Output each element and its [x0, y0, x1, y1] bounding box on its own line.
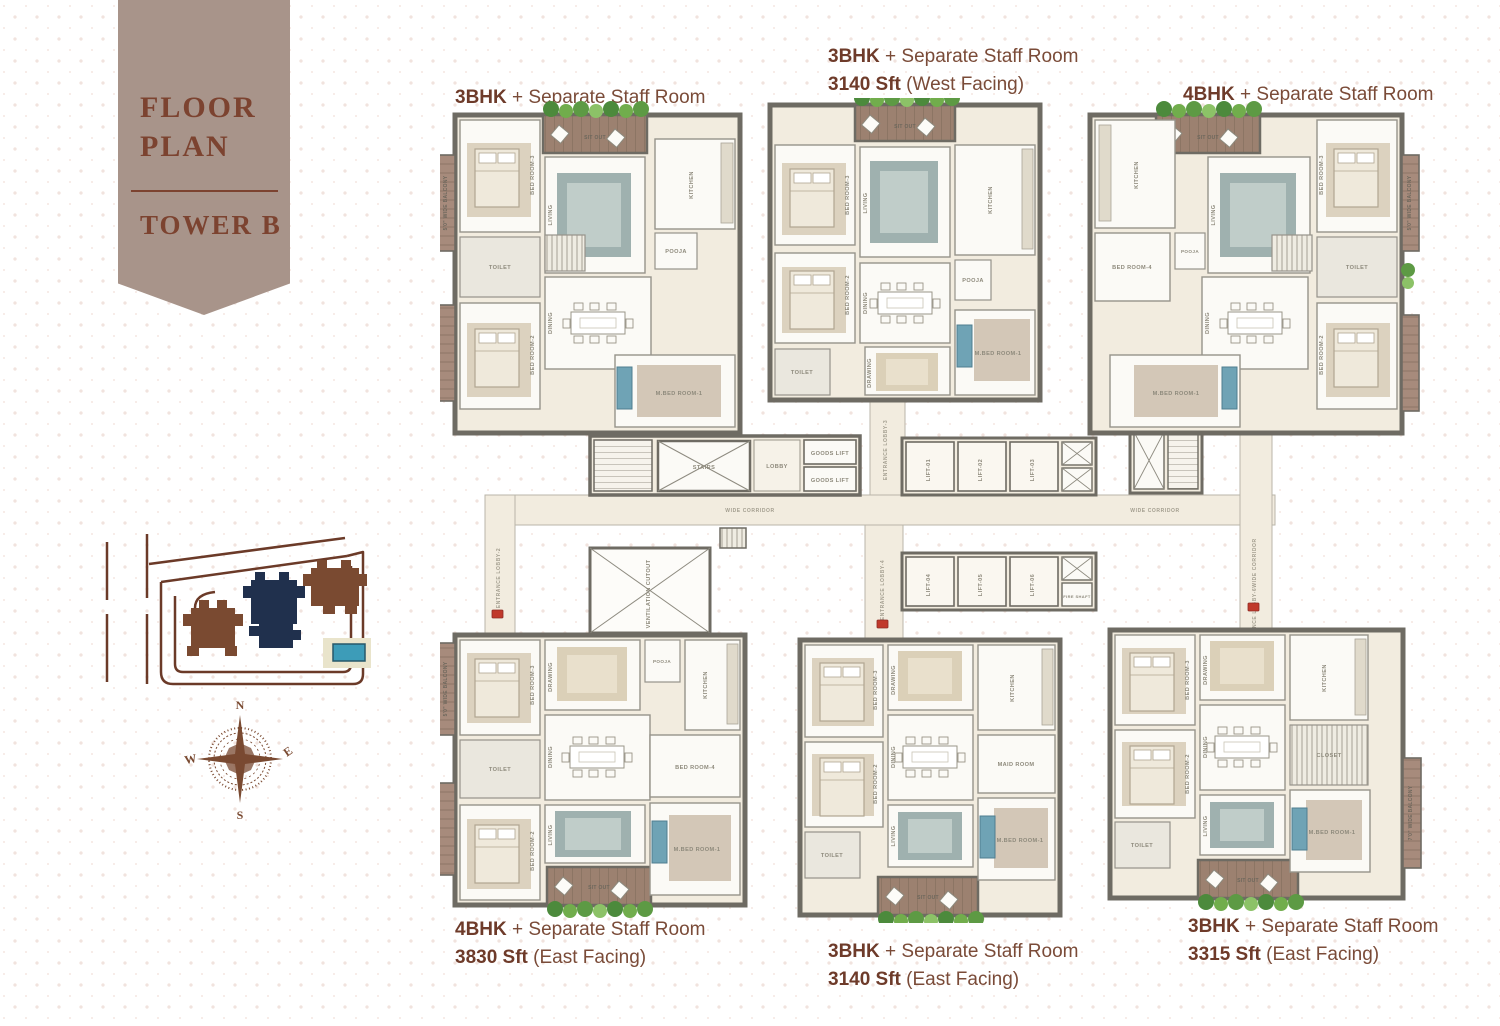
compass-w: W — [183, 751, 198, 767]
pooja-label: POOJA — [665, 249, 687, 255]
maid-room-label: MAID ROOM — [998, 762, 1035, 768]
sitout-label: SIT OUT — [1197, 135, 1219, 141]
unit-type: 3BHK — [828, 46, 880, 67]
unit-area: 3315 Sft — [1188, 944, 1261, 965]
unit-facing: (East Facing) — [533, 947, 646, 968]
lift-05-label: LIFT-05 — [978, 574, 984, 596]
corridor-label-vertical: WIDE CORRIDOR — [1252, 538, 1258, 587]
bed2-label: BED ROOM-2 — [530, 335, 536, 375]
compass-rose: N E S W — [183, 695, 298, 825]
unit-facing: (West Facing) — [906, 74, 1024, 95]
kitchen-label: KITCHEN — [1134, 161, 1140, 189]
living-label: LIVING — [891, 825, 897, 846]
toilet-label: TOILET — [1131, 843, 1153, 849]
unit-suffix: + Separate Staff Room — [885, 46, 1078, 67]
unit-plan-bottom-center: SIT OUT BED ROOM-3 DRAWING KITCHEN DININ… — [800, 640, 1060, 923]
living-label: LIVING — [548, 204, 554, 225]
dining-label: DINING — [548, 746, 554, 768]
dining-label: DINING — [891, 746, 897, 768]
floor-plan-page: FLOOR PLAN TOWER B 3BHK + Separate Staff… — [0, 0, 1500, 1026]
sitout-deck: SIT OUT — [547, 867, 653, 918]
lobby-label: LOBBY — [766, 464, 788, 470]
kitchen-label: KITCHEN — [703, 671, 709, 699]
drawing-label: DRAWING — [548, 662, 554, 692]
pooja-label: POOJA — [653, 659, 671, 664]
plants — [1401, 263, 1415, 277]
bed2-label: BED ROOM-2 — [530, 831, 536, 871]
bed3-label: BED ROOM-3 — [530, 665, 536, 705]
stairs-right — [1130, 428, 1202, 493]
unit-area: 3140 Sft — [828, 969, 901, 990]
mbed-label: M.BED ROOM-1 — [674, 847, 721, 853]
stairs-left — [594, 440, 652, 491]
balcony — [1402, 315, 1419, 411]
bed3-label: BED ROOM-3 — [1185, 660, 1191, 700]
unit-plan-bottom-left: 5'0" WIDE BALCONY SIT OUT DRAWING POOJA … — [440, 635, 745, 918]
lift-03-label: LIFT-03 — [1030, 459, 1036, 481]
drawing-label: DRAWING — [1203, 655, 1209, 685]
sitout-deck: SIT OUT — [854, 98, 960, 141]
goods-lift-label: GOODS LIFT — [811, 478, 849, 484]
kitchen-label: KITCHEN — [1322, 664, 1328, 692]
compass-e: E — [281, 743, 296, 759]
balcony-label: 7'0" WIDE BALCONY — [1408, 785, 1414, 840]
title-line-2: PLAN — [140, 127, 290, 166]
unit-plan-top-left: 5'0" WIDE BALCONY SIT OUT BED ROOM-3 LIV… — [440, 101, 740, 433]
mbed-label: M.BED ROOM-1 — [1309, 830, 1356, 836]
kitchen-label: KITCHEN — [988, 186, 994, 214]
lift-bank-lower: LIFT-04 LIFT-05 LIFT-06 FIRE SHAFT — [902, 553, 1096, 610]
unit-area: 3140 Sft — [828, 74, 901, 95]
garbage-chute — [720, 528, 746, 548]
toilet-label: TOILET — [489, 265, 511, 271]
sitout-label: SIT OUT — [1237, 878, 1259, 884]
bed2-label: BED ROOM-2 — [1319, 335, 1325, 375]
compass-star-minor — [224, 743, 256, 775]
pooja-label: POOJA — [1181, 249, 1199, 254]
dining-label: DINING — [548, 312, 554, 334]
lift-06-label: LIFT-06 — [1030, 574, 1036, 596]
compass-n: N — [236, 698, 245, 712]
pooja-label: POOJA — [962, 278, 984, 284]
mbed-label: M.BED ROOM-1 — [1153, 391, 1200, 397]
unit-plan-top-right: 5'0" WIDE BALCONY SIT OUT BED ROOM-3 LIV… — [1090, 101, 1419, 433]
drawing-label: DRAWING — [867, 358, 873, 388]
lift-bank-upper: LIFT-01 LIFT-02 LIFT-03 — [902, 438, 1096, 495]
unit-label-bottom-center: 3BHK + Separate Staff Room 3140 Sft (Eas… — [828, 938, 1078, 994]
site-tower-b-highlighted — [243, 572, 305, 648]
sitout-deck: SIT OUT — [1198, 860, 1304, 911]
entrance-lobby-4-label: ENTRANCE LOBBY-4 — [880, 560, 886, 620]
toilet-label: TOILET — [1346, 265, 1368, 271]
bed4-label: BED ROOM-4 — [675, 765, 715, 771]
toilet-label: TOILET — [791, 370, 813, 376]
corridor-label: WIDE CORRIDOR — [1130, 508, 1179, 514]
balcony-label: 5'0" WIDE BALCONY — [1407, 175, 1413, 230]
sitout-deck: SIT OUT — [878, 877, 984, 923]
toilet-label: TOILET — [489, 767, 511, 773]
bed3-label: BED ROOM-3 — [873, 670, 879, 710]
dining-label: DINING — [863, 292, 869, 314]
mbed-label: M.BED ROOM-1 — [656, 391, 703, 397]
unit-plan-bottom-right: 7'0" WIDE BALCONY SIT OUT BED ROOM-3 DRA… — [1110, 630, 1421, 911]
plants — [1402, 277, 1414, 289]
site-tower-a — [183, 600, 243, 656]
toilet-label: TOILET — [821, 853, 843, 859]
balcony — [440, 783, 455, 875]
bed2-label: BED ROOM-2 — [845, 275, 851, 315]
living-label: LIVING — [863, 192, 869, 213]
bed3-label: BED ROOM-3 — [530, 155, 536, 195]
balcony — [440, 305, 455, 401]
living-label: LIVING — [1203, 815, 1209, 836]
living-label: LIVING — [1211, 204, 1217, 225]
ventilation-small-label: STAIRS — [693, 465, 716, 471]
unit-plan-top-center: SIT OUT BED ROOM-3 LIVING KITCHEN POOJA … — [770, 98, 1040, 400]
bed3-label: BED ROOM-3 — [1319, 155, 1325, 195]
sitout-label: SIT OUT — [917, 895, 939, 901]
dining-label: DINING — [1205, 312, 1211, 334]
page-title: FLOOR PLAN — [140, 88, 290, 166]
sitout-label: SIT OUT — [588, 885, 610, 891]
unit-suffix: + Separate Staff Room — [885, 941, 1078, 962]
unit-type: 3BHK — [828, 941, 880, 962]
balcony-label: 5'0" WIDE BALCONY — [443, 175, 449, 230]
bed2-label: BED ROOM-2 — [873, 764, 879, 804]
tower-b-floor-plan: WIDE CORRIDOR WIDE CORRIDOR WIDE CORRIDO… — [440, 98, 1485, 923]
lift-02-label: LIFT-02 — [978, 459, 984, 481]
bed4-label: BED ROOM-4 — [1112, 265, 1152, 271]
balcony-label: 5'0" WIDE BALCONY — [443, 661, 449, 716]
banner-divider — [131, 190, 278, 192]
tower-name: TOWER B — [140, 210, 290, 241]
sitout-deck: SIT OUT — [543, 101, 649, 153]
compass-s: S — [237, 808, 244, 822]
kitchen-label: KITCHEN — [689, 171, 695, 199]
lift-04-label: LIFT-04 — [926, 573, 932, 596]
entrance-lobby-3-label: ENTRANCE LOBBY-3 — [883, 420, 889, 480]
drawing-label: DRAWING — [891, 665, 897, 695]
ventilation-cutout: VENTILATION CUTOUT — [590, 528, 746, 633]
title-line-1: FLOOR — [140, 88, 290, 127]
tower-banner: FLOOR PLAN TOWER B — [118, 0, 290, 315]
sitout-label: SIT OUT — [584, 135, 606, 141]
kitchen-label: KITCHEN — [1010, 674, 1016, 702]
living-label: LIVING — [548, 824, 554, 845]
lift-01-label: LIFT-01 — [926, 459, 932, 481]
mbed-label: M.BED ROOM-1 — [997, 838, 1044, 844]
core-left: STAIRS LOBBY GOODS LIFT GOODS LIFT — [590, 436, 860, 495]
fire-shaft-label: FIRE SHAFT — [1063, 594, 1091, 599]
unit-area: 3830 Sft — [455, 947, 528, 968]
ventilation-label: VENTILATION CUTOUT — [646, 559, 652, 628]
bed2-label: BED ROOM-2 — [1185, 754, 1191, 794]
site-pool — [323, 638, 371, 668]
unit-facing: (East Facing) — [906, 969, 1019, 990]
closet — [1272, 235, 1312, 271]
closet-label: CLOSET — [1316, 753, 1341, 759]
goods-lift-label: GOODS LIFT — [811, 451, 849, 457]
corridor-label: WIDE CORRIDOR — [725, 508, 774, 514]
site-tower-c — [303, 560, 367, 614]
site-map — [95, 522, 405, 707]
closet — [545, 235, 585, 271]
sitout-label: SIT OUT — [894, 124, 916, 130]
mbed-label: M.BED ROOM-1 — [975, 351, 1022, 357]
entrance-lobby-2-label: ENTRANCE LOBBY-2 — [496, 548, 502, 608]
dining-label: DINING — [1203, 736, 1209, 758]
unit-facing: (East Facing) — [1266, 944, 1379, 965]
unit-label-top-center: 3BHK + Separate Staff Room 3140 Sft (Wes… — [828, 43, 1078, 99]
bed3-label: BED ROOM-3 — [845, 175, 851, 215]
unit-label-bottom-left: 4BHK + Separate Staff Room 3830 Sft (Eas… — [455, 916, 705, 972]
